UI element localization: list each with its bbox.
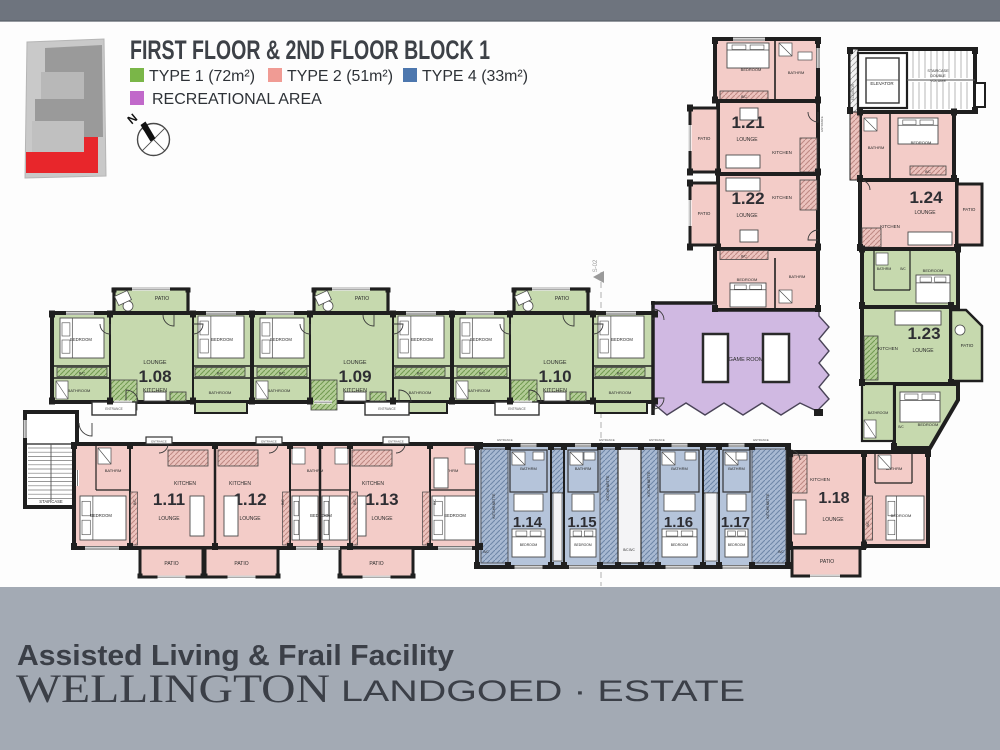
svg-text:BEDROOM: BEDROOM	[90, 513, 112, 518]
svg-text:B/C: B/C	[281, 499, 285, 505]
svg-text:RECREATIONAL AREA: RECREATIONAL AREA	[152, 91, 322, 108]
svg-text:BEDROOM: BEDROOM	[310, 513, 332, 518]
svg-text:KITCHEN: KITCHEN	[878, 346, 898, 351]
svg-text:BATHROOM: BATHROOM	[209, 390, 232, 395]
svg-text:PATIO: PATIO	[355, 296, 369, 302]
svg-text:ENTRANCE: ENTRANCE	[508, 407, 526, 411]
svg-text:LOUNGE: LOUNGE	[239, 516, 261, 522]
svg-text:BEDROOM: BEDROOM	[520, 543, 538, 547]
svg-text:BEDROOM: BEDROOM	[741, 67, 762, 72]
svg-text:BEDROOM: BEDROOM	[611, 337, 633, 342]
svg-text:KITCHEN: KITCHEN	[880, 224, 900, 229]
svg-text:1.11: 1.11	[153, 490, 185, 509]
svg-text:STAIRCASE: STAIRCASE	[927, 69, 949, 73]
svg-text:B/C: B/C	[778, 550, 784, 554]
svg-text:LOUNGE: LOUNGE	[371, 516, 393, 522]
svg-text:STAIRCASE: STAIRCASE	[39, 499, 63, 504]
svg-text:BEDROOM: BEDROOM	[923, 268, 944, 273]
svg-text:B/C: B/C	[483, 550, 489, 554]
svg-text:KITCHEN: KITCHEN	[143, 388, 167, 394]
svg-text:B/C: B/C	[133, 499, 137, 505]
svg-text:LOUNGE: LOUNGE	[543, 360, 567, 366]
svg-text:BEDROOM: BEDROOM	[671, 543, 689, 547]
svg-text:BEDROOM: BEDROOM	[270, 337, 292, 342]
svg-text:BATHRM: BATHRM	[788, 70, 805, 75]
svg-text:LOUNGE: LOUNGE	[736, 137, 758, 143]
svg-text:B/C: B/C	[279, 372, 286, 376]
svg-text:ENTRANCE: ENTRANCE	[649, 438, 665, 442]
svg-text:PATIO: PATIO	[698, 211, 711, 216]
svg-text:ENTRANCE: ENTRANCE	[820, 116, 824, 132]
svg-text:1.18: 1.18	[818, 490, 849, 507]
svg-text:PATIO: PATIO	[369, 561, 383, 567]
svg-text:BATHROOM: BATHROOM	[68, 388, 91, 393]
svg-text:KITCHEN: KITCHEN	[229, 481, 251, 487]
svg-text:BEDROOM: BEDROOM	[728, 543, 746, 547]
svg-text:1.24: 1.24	[909, 188, 943, 207]
svg-text:PATIO: PATIO	[961, 343, 974, 348]
svg-text:BATHROOM: BATHROOM	[268, 388, 291, 393]
svg-text:BATHRM: BATHRM	[575, 466, 592, 471]
svg-text:PATIO: PATIO	[555, 296, 569, 302]
svg-text:LOUNGE: LOUNGE	[822, 517, 844, 523]
svg-text:1.10: 1.10	[538, 367, 571, 386]
svg-text:KITCHEN: KITCHEN	[772, 195, 792, 200]
svg-text:KITCHEN: KITCHEN	[362, 481, 384, 487]
svg-text:KITCHENETTE: KITCHENETTE	[647, 471, 651, 497]
svg-text:B/C: B/C	[925, 170, 931, 174]
svg-text:B/C: B/C	[900, 267, 906, 271]
svg-text:LOUNGE: LOUNGE	[736, 213, 758, 219]
svg-text:B/C: B/C	[741, 255, 747, 259]
svg-text:ENTRANCE: ENTRANCE	[599, 438, 615, 442]
svg-text:1.16: 1.16	[664, 514, 693, 531]
svg-text:BEDROOM: BEDROOM	[918, 422, 939, 427]
svg-text:TYPE 2 (51m²): TYPE 2 (51m²)	[287, 68, 393, 85]
svg-text:BATHROOM: BATHROOM	[409, 390, 432, 395]
svg-text:B/C: B/C	[866, 521, 870, 527]
svg-text:B/C: B/C	[479, 372, 486, 376]
svg-text:ENTRANCE: ENTRANCE	[388, 440, 404, 444]
svg-text:LOUNGE: LOUNGE	[914, 210, 936, 216]
svg-text:LOUNGE: LOUNGE	[912, 348, 934, 354]
svg-text:BEDROOM: BEDROOM	[470, 337, 492, 342]
svg-text:BEDROOM: BEDROOM	[891, 513, 912, 518]
svg-text:LOUNGE: LOUNGE	[143, 360, 167, 366]
svg-text:BATHRM: BATHRM	[868, 145, 885, 150]
svg-text:PATIO: PATIO	[155, 296, 169, 302]
svg-text:PATIO: PATIO	[164, 561, 178, 567]
svg-text:GAME ROOM: GAME ROOM	[729, 357, 764, 363]
svg-text:KITCHENETTE: KITCHENETTE	[766, 493, 770, 519]
svg-text:BATHRM: BATHRM	[307, 468, 324, 473]
svg-text:B/C: B/C	[617, 372, 624, 376]
svg-text:PATIO: PATIO	[698, 136, 711, 141]
svg-text:BEDROOM: BEDROOM	[574, 543, 592, 547]
svg-text:1.09: 1.09	[338, 367, 371, 386]
svg-text:B/C: B/C	[741, 95, 747, 99]
svg-text:ENTRANCE: ENTRANCE	[261, 440, 277, 444]
svg-text:BATHRM: BATHRM	[728, 466, 745, 471]
svg-text:KITCHENETTE: KITCHENETTE	[606, 475, 610, 501]
svg-text:LOUNGE: LOUNGE	[343, 360, 367, 366]
svg-text:TYPE 4 (33m²): TYPE 4 (33m²)	[422, 68, 528, 85]
svg-text:BATHRM: BATHRM	[105, 468, 122, 473]
svg-text:BEDROOM: BEDROOM	[911, 140, 932, 145]
svg-text:B/C: B/C	[79, 372, 86, 376]
svg-text:BEDROOM: BEDROOM	[211, 337, 233, 342]
svg-text:BEDROOM: BEDROOM	[444, 513, 466, 518]
svg-text:ENTRANCE: ENTRANCE	[497, 438, 513, 442]
svg-text:BATHRM: BATHRM	[520, 466, 537, 471]
svg-text:DOUBLE: DOUBLE	[930, 74, 946, 78]
svg-text:PATIO: PATIO	[963, 207, 976, 212]
svg-text:BATHROOM: BATHROOM	[609, 390, 632, 395]
svg-text:PATIO: PATIO	[234, 561, 248, 567]
svg-text:B/C: B/C	[898, 425, 904, 429]
svg-text:KITCHEN: KITCHEN	[343, 388, 367, 394]
svg-text:ENTRANCE: ENTRANCE	[378, 407, 396, 411]
svg-text:S-02: S-02	[593, 259, 599, 272]
svg-text:BEDROOM: BEDROOM	[411, 337, 433, 342]
svg-text:KITCHEN: KITCHEN	[810, 477, 830, 482]
svg-text:B/C: B/C	[433, 499, 437, 505]
svg-text:BATHRM: BATHRM	[789, 274, 806, 279]
svg-text:ELEVATOR: ELEVATOR	[851, 83, 855, 100]
svg-text:1.13: 1.13	[365, 490, 398, 509]
svg-text:PATIO: PATIO	[820, 559, 834, 565]
svg-text:BATHROOM: BATHROOM	[868, 411, 889, 415]
svg-text:KITCHEN: KITCHEN	[543, 388, 567, 394]
svg-text:BATHROOM: BATHROOM	[468, 388, 491, 393]
svg-text:TYPE 1 (72m²): TYPE 1 (72m²)	[149, 68, 255, 85]
svg-text:1.17: 1.17	[721, 514, 750, 531]
svg-text:B/C: B/C	[217, 372, 224, 376]
svg-text:BATHRM: BATHRM	[877, 267, 892, 271]
svg-text:KITCHEN: KITCHEN	[772, 150, 792, 155]
svg-text:KITCHENETTE: KITCHENETTE	[492, 493, 496, 519]
svg-text:1.08: 1.08	[138, 367, 171, 386]
svg-text:BATHRM: BATHRM	[671, 466, 688, 471]
svg-text:B/C B/C: B/C B/C	[623, 548, 635, 552]
svg-text:1.22: 1.22	[731, 189, 764, 208]
svg-text:BEDROOM: BEDROOM	[737, 277, 758, 282]
svg-text:ENTRANCE: ENTRANCE	[151, 440, 167, 444]
svg-text:B/C: B/C	[353, 499, 357, 505]
svg-text:BEDROOM: BEDROOM	[70, 337, 92, 342]
svg-text:1.15: 1.15	[567, 514, 596, 531]
svg-text:VOLUME: VOLUME	[930, 79, 947, 83]
svg-text:LANDGOED · ESTATE: LANDGOED · ESTATE	[341, 675, 745, 708]
svg-text:ENTRANCE: ENTRANCE	[753, 438, 769, 442]
svg-text:ELEVATOR: ELEVATOR	[870, 81, 894, 86]
svg-text:KITCHEN: KITCHEN	[174, 481, 196, 487]
svg-text:WELLINGTON: WELLINGTON	[16, 666, 330, 711]
svg-text:FIRST FLOOR & 2ND FLOOR BLOCK: FIRST FLOOR & 2ND FLOOR BLOCK 1	[130, 35, 490, 65]
svg-text:1.23: 1.23	[907, 324, 940, 343]
svg-text:ENTRANCE: ENTRANCE	[105, 407, 123, 411]
svg-text:B/C: B/C	[417, 372, 424, 376]
svg-text:1.14: 1.14	[513, 514, 543, 531]
svg-text:LOUNGE: LOUNGE	[158, 516, 180, 522]
